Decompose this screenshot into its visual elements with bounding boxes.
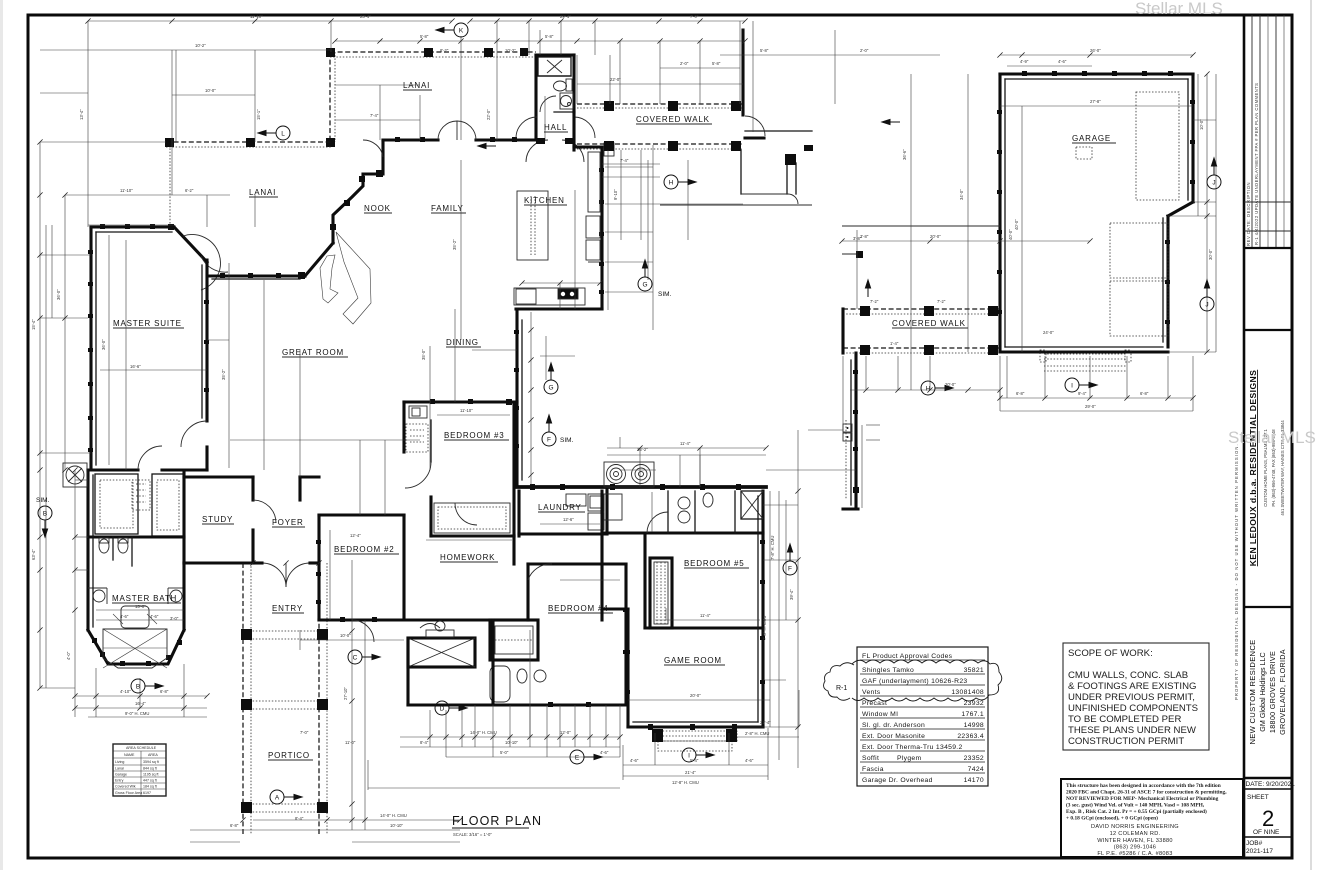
svg-text:GARAGE: GARAGE [1072,134,1111,143]
svg-text:Plygem: Plygem [897,755,922,762]
svg-text:9'-10": 9'-10" [613,189,618,200]
svg-text:5'-0": 5'-0" [500,750,509,755]
svg-text:C: C [353,655,358,662]
svg-text:3'-8": 3'-8" [853,236,862,241]
svg-text:10'-2": 10'-2" [195,43,206,48]
svg-text:Lanai: Lanai [115,767,124,771]
svg-text:Shingles Tamko: Shingles Tamko [862,667,914,674]
svg-text:10'-2": 10'-2" [505,48,516,53]
svg-text:Garage Dr. Overhead: Garage Dr. Overhead [862,777,933,784]
svg-text:18800 GROVES DRIVE: 18800 GROVES DRIVE [1268,651,1277,733]
svg-text:35821: 35821 [964,667,984,674]
svg-text:39'-4": 39'-4" [789,589,794,600]
svg-text:21'-4": 21'-4" [760,720,771,725]
svg-text:7'-2": 7'-2" [937,299,946,304]
svg-text:BEDROOM #3: BEDROOM #3 [444,431,504,440]
svg-text:11'-10": 11'-10" [250,14,263,19]
svg-text:HALL: HALL [544,123,567,132]
svg-text:35'-0": 35'-0" [421,349,426,360]
svg-text:COVERED WALK: COVERED WALK [636,115,710,124]
svg-text:5'-8": 5'-8" [545,34,554,39]
svg-text:NOOK: NOOK [364,204,391,213]
svg-text:7'-4": 7'-4" [370,113,379,118]
svg-text:STUDY: STUDY [202,515,233,524]
svg-text:GROVELAND, FLORIDA: GROVELAND, FLORIDA [1278,649,1287,735]
svg-text:GREAT ROOM: GREAT ROOM [282,348,344,357]
svg-text:FAMILY: FAMILY [431,204,464,213]
svg-text:WINTER HAVEN, FL 33880: WINTER HAVEN, FL 33880 [1097,838,1173,844]
svg-text:Exp. B , Risk Cat. 2 Int. Pr =: Exp. B , Risk Cat. 2 Int. Pr = + 0.55 GC… [1066,808,1207,815]
svg-text:CONSTRUCTION PERMIT: CONSTRUCTION PERMIT [1068,736,1184,747]
svg-text:12 COLEMAN RD.: 12 COLEMAN RD. [1110,831,1161,837]
svg-text:BEDROOM #2: BEDROOM #2 [334,545,394,554]
svg-text:844 sq ft: 844 sq ft [143,767,157,771]
svg-text:36'-2": 36'-2" [637,447,648,452]
svg-text:K: K [459,28,464,35]
svg-text:30'-0": 30'-0" [1208,249,1213,260]
svg-text:15'-4": 15'-4" [31,319,36,330]
svg-text:22'-0": 22'-0" [486,109,491,120]
svg-text:& FOOTINGS ARE EXISTING: & FOOTINGS ARE EXISTING [1068,681,1196,692]
svg-text:11'-4": 11'-4" [680,441,691,446]
svg-text:DATE: 9/20/2021: DATE: 9/20/2021 [1246,781,1296,788]
svg-text:23'-4": 23'-4" [360,14,371,19]
svg-text:184 sq ft: 184 sq ft [143,785,157,789]
svg-text:36'-0": 36'-0" [56,289,61,300]
svg-text:(863) 299-1046: (863) 299-1046 [1114,845,1156,851]
svg-text:7'-0": 7'-0" [690,14,699,19]
svg-text:MASTER SUITE: MASTER SUITE [113,319,182,328]
svg-text:G: G [548,385,553,392]
svg-text:R-1: R-1 [836,685,847,692]
svg-text:FL Product Approval Codes: FL Product Approval Codes [862,653,953,660]
svg-text:THESE PLANS UNDER NEW: THESE PLANS UNDER NEW [1068,725,1197,736]
svg-text:J: J [1205,302,1208,309]
svg-text:SCOPE OF WORK:: SCOPE OF WORK: [1068,648,1153,659]
svg-text:13081408: 13081408 [951,689,984,696]
svg-text:8'-2": 8'-2" [440,48,449,53]
svg-text:11'-10": 11'-10" [120,188,133,193]
svg-text:UNFINISHED COMPONENTS: UNFINISHED COMPONENTS [1068,703,1198,714]
svg-text:40'-0": 40'-0" [1014,219,1019,230]
svg-text:2020 FBC and Chapt. 26-31 of A: 2020 FBC and Chapt. 26-31 of ASCE 7 for … [1066,790,1227,796]
svg-text:UNDER PREVIOUS PERMIT,: UNDER PREVIOUS PERMIT, [1068,692,1195,703]
svg-text:2'-8" H. CMU: 2'-8" H. CMU [745,731,769,736]
svg-text:7'-2": 7'-2" [870,299,879,304]
svg-text:7'-0": 7'-0" [300,730,309,735]
svg-text:G: G [642,282,647,289]
svg-text:PROPERTY OF RESIDENTIAL DESIGN: PROPERTY OF RESIDENTIAL DESIGNS - DO NOT… [1234,443,1239,700]
svg-text:6'-8": 6'-8" [1140,391,1149,396]
svg-text:NEW CUSTOM RESIDENCE: NEW CUSTOM RESIDENCE [1248,639,1257,744]
svg-text:J: J [1212,180,1215,187]
svg-text:23352: 23352 [964,755,984,762]
svg-text:DINING: DINING [446,338,479,347]
svg-text:A: A [275,795,280,802]
svg-text:29'-0": 29'-0" [1085,404,1096,409]
svg-text:2: 2 [1262,806,1274,831]
svg-text:10'-0": 10'-0" [205,88,216,93]
svg-text:BEDROOM #4: BEDROOM #4 [548,604,608,613]
svg-text:Gross Floor Area: Gross Floor Area [115,791,142,795]
svg-text:F: F [788,566,792,573]
svg-text:Ext. Door Therma-Tru 13459.2: Ext. Door Therma-Tru 13459.2 [862,744,963,751]
svg-text:GAME ROOM: GAME ROOM [664,656,722,665]
svg-text:R-1 4/4/2022 UPDATE UNDERLAY: R-1 4/4/2022 UPDATE UNDERLAYMENT FPA # P… [1254,83,1259,245]
svg-text:11'-10": 11'-10" [460,408,473,413]
svg-text:5'-8": 5'-8" [760,48,769,53]
svg-text:4'-10": 4'-10" [120,689,131,694]
svg-text:Stellar MLS: Stellar MLS [1135,0,1223,18]
svg-text:SIM.: SIM. [658,291,672,298]
svg-text:4'-6": 4'-6" [745,758,754,763]
svg-text:16'-6": 16'-6" [130,364,141,369]
svg-text:LAUNDRY: LAUNDRY [538,503,582,512]
svg-text:2021-117: 2021-117 [1246,848,1273,855]
svg-text:5'-8": 5'-8" [712,61,721,66]
svg-text:HOMEWORK: HOMEWORK [440,553,495,562]
svg-text:5'-8": 5'-8" [420,34,429,39]
svg-text:AREA SCHEDULE: AREA SCHEDULE [126,746,157,750]
svg-text:12'-4": 12'-4" [350,533,361,538]
svg-text:4'-6": 4'-6" [630,758,639,763]
svg-text:PORTICO: PORTICO [268,751,310,760]
svg-text:6'-2": 6'-2" [185,188,194,193]
svg-text:LANAI: LANAI [403,81,430,90]
svg-text:Living: Living [115,760,124,764]
svg-text:14'-0" H. CMU: 14'-0" H. CMU [470,730,497,735]
svg-text:1'-4": 1'-4" [890,341,899,346]
svg-text:Covered Wlk: Covered Wlk [115,785,136,789]
svg-text:AREA: AREA [148,753,158,757]
svg-text:Fascia: Fascia [862,766,884,773]
svg-text:SHEET: SHEET [1247,794,1269,801]
svg-text:KEN LEDOUX d.b.a. RESIDENTIAL: KEN LEDOUX d.b.a. RESIDENTIAL DESIGNS [1248,370,1258,567]
svg-text:7'-8" H. CMU: 7'-8" H. CMU [762,616,767,640]
svg-text:35'-2": 35'-2" [221,369,226,380]
svg-text:447 sq ft: 447 sq ft [143,779,157,783]
svg-text:4'-9": 4'-9" [1020,59,1029,64]
svg-text:11'-4": 11'-4" [700,613,711,618]
svg-text:4'-6": 4'-6" [600,750,609,755]
svg-text:2'-0": 2'-0" [680,61,689,66]
svg-text:MASTER BATH: MASTER BATH [112,594,177,603]
svg-text:3594 sq ft: 3594 sq ft [143,760,159,764]
svg-text:16'-4": 16'-4" [135,701,146,706]
svg-text:4'-6": 4'-6" [150,614,159,619]
svg-text:Stellar MLS: Stellar MLS [1228,428,1316,447]
svg-text:8'-4": 8'-4" [420,740,429,745]
svg-text:NAME: NAME [124,753,135,757]
svg-text:10'-0": 10'-0" [340,633,351,638]
svg-text:H: H [669,180,674,187]
svg-text:12'-8" H. CMU: 12'-8" H. CMU [672,780,699,785]
svg-text:40'-0": 40'-0" [1008,229,1013,240]
svg-text:Vents: Vents [862,689,881,696]
svg-text:11'-0": 11'-0" [345,740,356,745]
svg-text:35'-2": 35'-2" [452,239,457,250]
svg-text:24'-0": 24'-0" [1043,330,1054,335]
svg-text:14998: 14998 [964,722,984,729]
svg-text:21'-4": 21'-4" [685,770,696,775]
svg-text:3'-0": 3'-0" [170,616,179,621]
svg-text:12'-0": 12'-0" [560,730,571,735]
svg-text:14170: 14170 [964,777,984,784]
svg-text:NOT REVIEWED FOR MEP- Mechanic: NOT REVIEWED FOR MEP- Mechanical Electri… [1066,796,1219,802]
svg-text:10'-10": 10'-10" [505,740,519,745]
svg-text:GM Global Holdings LLC: GM Global Holdings LLC [1258,652,1267,732]
svg-text:TO BE COMPLETED PER: TO BE COMPLETED PER [1068,714,1181,725]
svg-text:BEDROOM #5: BEDROOM #5 [684,559,744,568]
svg-text:+ 0.18 GCpi (enclosed), + 0: + 0.18 GCpi (enclosed), + 0 GCpi (open) [1066,815,1158,822]
svg-text:6'-8": 6'-8" [230,823,239,828]
svg-text:9'-4": 9'-4" [1078,391,1087,396]
svg-text:B: B [43,511,47,518]
svg-text:B: B [136,684,140,691]
svg-text:7'-4": 7'-4" [620,158,629,163]
svg-text:6197: 6197 [143,791,151,795]
svg-text:Entry: Entry [115,779,124,783]
svg-text:36'-0": 36'-0" [101,339,106,350]
svg-text:I: I [1071,383,1073,390]
svg-text:SIM.: SIM. [560,437,574,444]
svg-text:SCALE: 3/16" = 1'-0": SCALE: 3/16" = 1'-0" [453,832,492,837]
svg-text:10'-10": 10'-10" [390,823,404,828]
svg-text:63'-4": 63'-4" [31,549,36,560]
svg-text:4'-6": 4'-6" [1058,59,1067,64]
svg-text:1767.1: 1767.1 [961,711,984,718]
svg-text:4'-6": 4'-6" [120,614,129,619]
svg-text:COVERED WALK: COVERED WALK [892,319,966,328]
svg-text:6'-8": 6'-8" [160,689,169,694]
svg-text:34'-0": 34'-0" [959,189,964,200]
svg-text:20'-0": 20'-0" [930,234,941,239]
svg-text:Garage: Garage [115,773,127,777]
svg-text:FLOOR PLAN: FLOOR PLAN [452,814,542,828]
svg-text:This structure has been design: This structure has been designed in acco… [1066,783,1221,789]
svg-text:4'-0": 4'-0" [66,651,71,660]
svg-text:9'-0" H. CMU: 9'-0" H. CMU [125,711,149,716]
svg-text:FOYER: FOYER [272,518,304,527]
svg-text:E: E [575,755,580,762]
svg-text:10'-0": 10'-0" [1199,119,1204,130]
svg-text:FL P.E. #5286 / C.A. #8083: FL P.E. #5286 / C.A. #8083 [1097,851,1172,857]
svg-text:Soffit: Soffit [862,755,879,762]
svg-text:ENTRY: ENTRY [272,604,303,613]
svg-text:D: D [440,706,445,713]
svg-text:15'-1": 15'-1" [256,109,261,120]
svg-text:KITCHEN: KITCHEN [524,196,565,205]
svg-text:22'-0": 22'-0" [610,77,621,82]
svg-text:27'-8": 27'-8" [1090,99,1101,104]
svg-text:Window MI: Window MI [862,711,898,718]
svg-text:29'-4": 29'-4" [560,14,571,19]
svg-text:14'-0" H. CMU: 14'-0" H. CMU [380,813,407,818]
svg-text:SIM.: SIM. [36,497,50,504]
svg-text:7424: 7424 [968,766,984,773]
svg-text:CMU WALLS, CONC. SLAB: CMU WALLS, CONC. SLAB [1068,670,1188,681]
svg-text:JOB#: JOB# [1246,840,1263,847]
svg-text:Ext. Door Masonite: Ext. Door Masonite [862,733,925,740]
svg-text:I: I [688,753,690,760]
svg-text:1195 sq ft: 1195 sq ft [143,773,159,777]
svg-text:H: H [926,386,931,393]
svg-text:26'-0": 26'-0" [1090,48,1101,53]
svg-text:22363.4: 22363.4 [957,733,984,740]
svg-text:(3 sec. gust) Wind Vel. of Vul: (3 sec. gust) Wind Vel. of Vult = 140 MP… [1066,802,1205,809]
svg-text:OF NINE: OF NINE [1253,829,1280,836]
svg-text:DAVID NORRIS ENGINEERING: DAVID NORRIS ENGINEERING [1091,824,1179,830]
svg-text:12'-6": 12'-6" [563,517,574,522]
svg-text:GAF (underlayment) 10626-R23: GAF (underlayment) 10626-R23 [862,678,968,685]
svg-text:20'-0": 20'-0" [690,693,701,698]
svg-text:7'-8" H. CMU: 7'-8" H. CMU [770,536,775,560]
svg-text:Sl. gl. dr. Anderson: Sl. gl. dr. Anderson [862,722,925,729]
svg-text:8'-4": 8'-4" [295,816,304,821]
svg-text:6'-8": 6'-8" [1016,391,1025,396]
svg-text:F: F [547,437,551,444]
svg-text:REV DATE: DESCRIPTION: REV DATE: DESCRIPTION [1246,182,1251,246]
svg-text:2'-0": 2'-0" [860,48,869,53]
svg-text:15'-0": 15'-0" [135,604,146,609]
svg-text:36'-6": 36'-6" [902,149,907,160]
svg-text:L: L [281,131,285,138]
svg-text:LANAI: LANAI [249,188,276,197]
svg-text:13'-4": 13'-4" [79,109,84,120]
svg-text:27'-10": 27'-10" [343,686,348,700]
